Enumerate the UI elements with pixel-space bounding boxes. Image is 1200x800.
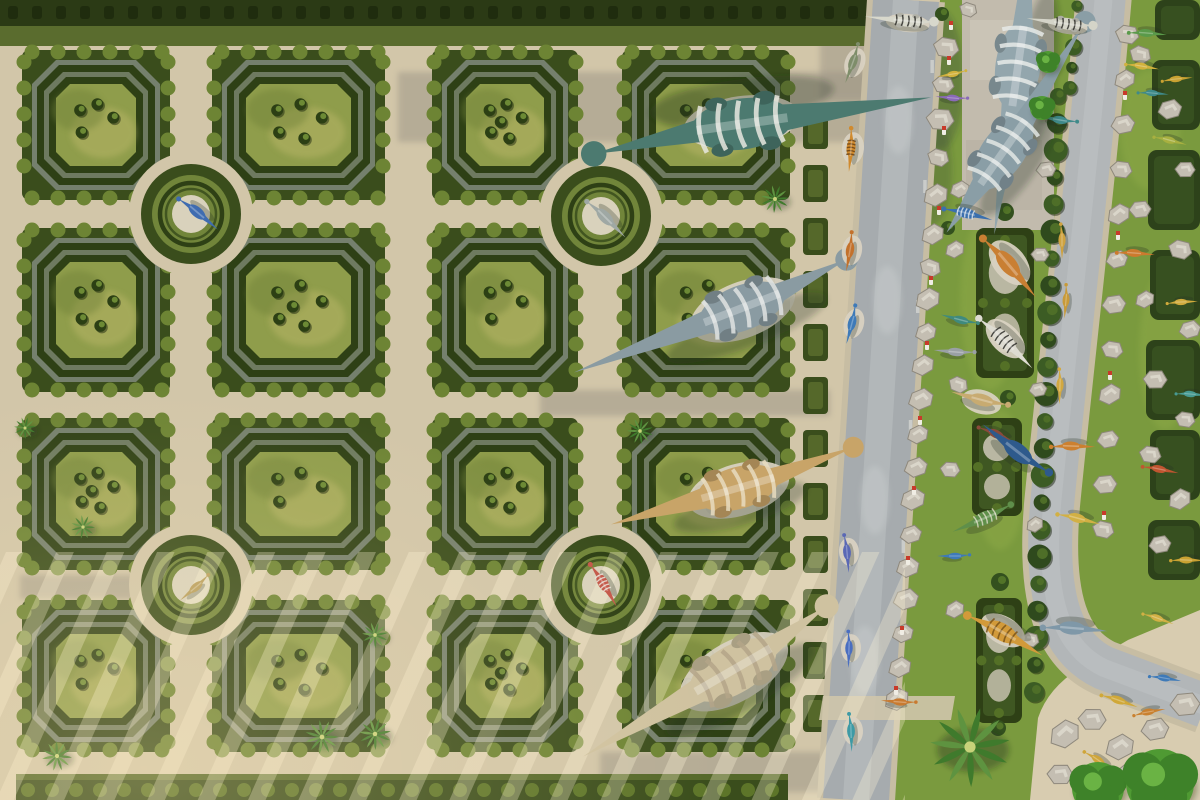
sunlight-glow [0, 0, 1200, 800]
garden-aerial-svg [0, 0, 1200, 800]
aerial-dinosaur-garden-photo [0, 0, 1200, 800]
